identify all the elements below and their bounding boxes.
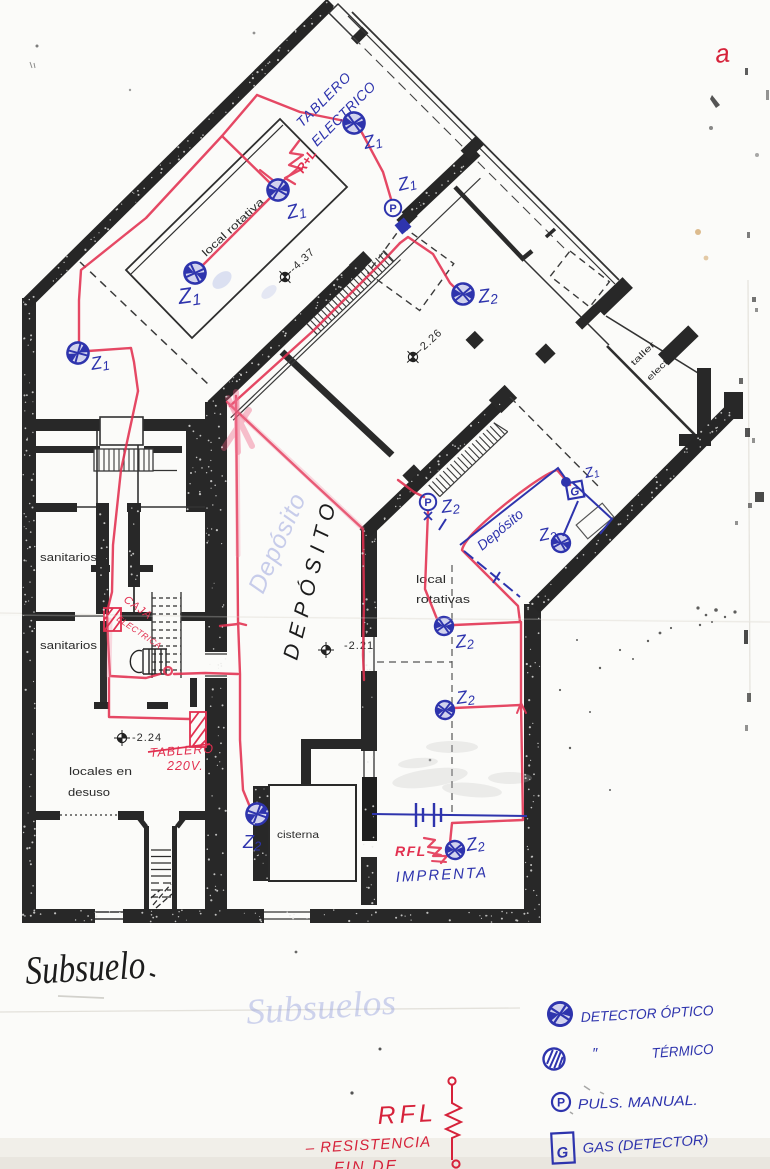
svg-text:G: G bbox=[556, 1144, 569, 1162]
svg-text:FIN DE: FIN DE bbox=[334, 1158, 399, 1169]
svg-text:-2.21: -2.21 bbox=[344, 640, 374, 652]
svg-text:locales en: locales en bbox=[69, 766, 132, 778]
svg-text:220V.: 220V. bbox=[166, 759, 204, 773]
svg-text:Subsuelo: Subsuelo bbox=[24, 942, 146, 993]
svg-text:-2.24: -2.24 bbox=[132, 732, 162, 744]
svg-text:RFL: RFL bbox=[377, 1099, 438, 1130]
svg-text:rotativas: rotativas bbox=[416, 594, 471, 606]
svg-text:cisterna: cisterna bbox=[277, 830, 320, 841]
svg-text:desuso: desuso bbox=[68, 787, 110, 799]
svg-text:sanitarios: sanitarios bbox=[40, 552, 98, 564]
svg-text:sanitarios: sanitarios bbox=[40, 640, 98, 652]
svg-text:″: ″ bbox=[592, 1045, 598, 1062]
svg-text:RFL: RFL bbox=[395, 843, 427, 859]
svg-text:local: local bbox=[416, 574, 446, 586]
